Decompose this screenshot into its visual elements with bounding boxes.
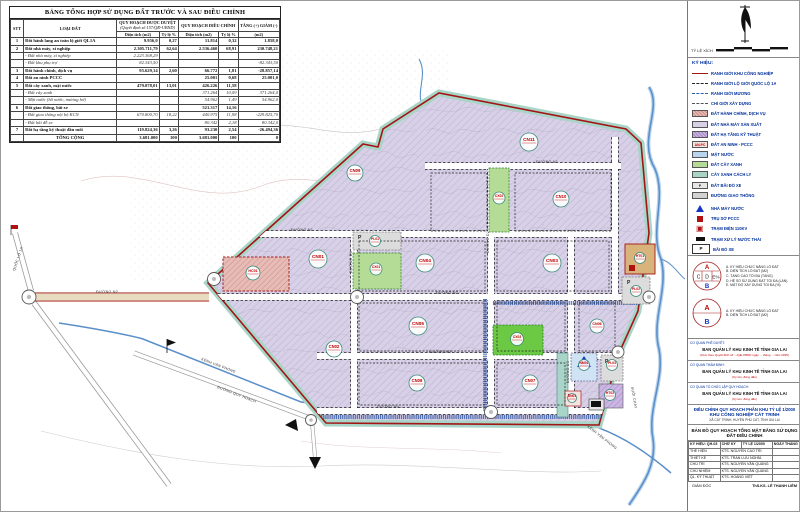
table-row: - Đất cây xanh371.26410,09371.264,0	[11, 90, 280, 97]
legend-item: TRẠM XỬ LÝ NƯỚC THẢI	[692, 234, 798, 244]
lot-circle-full-notes: A. KÝ HIỆU CHỨC NĂNG LÔ ĐẤTB. DIỆN TÍCH …	[726, 265, 798, 288]
parcel-label-cn11: CN11	[520, 133, 538, 151]
svg-text:C: C	[697, 275, 701, 281]
parcel-label-ht01: HT01	[635, 253, 646, 264]
north-arrow-icon	[725, 3, 765, 45]
legend-item: TRỤ SỞ PCCC	[692, 214, 798, 224]
svg-text:B: B	[705, 284, 710, 290]
legend-item: PBÃI ĐỖ XE	[692, 244, 798, 254]
parcel-label-cn07: CN07	[522, 375, 538, 391]
lot-circle-simple-icon: A B	[691, 297, 723, 329]
svg-text:A: A	[704, 305, 709, 312]
col-stt: STT	[11, 20, 24, 38]
legend-label: ĐẤT AN NINH - PCCC	[711, 142, 753, 147]
svg-text:B: B	[704, 319, 709, 326]
road-label: ĐƯỜNG N2	[96, 289, 118, 294]
legend-list: RANH GIỚI KHU CÔNG NGHIỆPRANH GIỚI LỘ GI…	[692, 68, 798, 200]
symbol-list: NHÀ MÁY NƯỚCTRỤ SỞ PCCCTRẠM ĐIỆN 110KVTR…	[692, 203, 798, 254]
legend-item: MẶT NƯỚC	[692, 150, 798, 160]
lot-circle-simple-notes: A. KÝ HIỆU CHỨC NĂNG LÔ ĐẤTB. DIỆN TÍCH …	[726, 309, 798, 318]
table-row: 4Đất an ninh PCCC25.0010,6825.001,0	[11, 75, 280, 82]
director-row: GIÁM ĐỐC ThS.KS. LÊ THANH LIÊM	[688, 482, 800, 490]
parcel-label-cn01: CN01	[309, 250, 327, 268]
project-title-section: ĐIỀU CHỈNH QUY HOẠCH PHÂN KHU TỶ LỆ 1/20…	[688, 405, 800, 425]
drawing-title: BẢN ĐỒ QUY HOẠCH TỔNG MẶT BẰNG SỬ DỤNG Đ…	[688, 425, 800, 441]
svg-text:CN06: CN06	[592, 322, 601, 326]
svg-text:AN01: AN01	[568, 394, 577, 398]
road-label: ĐƯỜNG D2	[485, 231, 490, 253]
staff-table: KÝ HIỆU: QH-03CHỮ KÝTỶ LỆ 1/2000NGÀY THÁ…	[688, 441, 800, 482]
svg-text:HT02: HT02	[606, 391, 614, 395]
wwtp-icon	[591, 401, 601, 407]
legend-item: TRẠM ĐIỆN 110KV	[692, 224, 798, 234]
legend-item: RANH GIỚI MƯƠNG	[692, 88, 798, 98]
legend-panel: TỶ LỆ XÍCH KÝ HIỆU: RANH GIỚI KHU CÔNG N…	[687, 1, 800, 512]
legend-item: ĐẤT HÀNH CHÍNH, DỊCH VỤ	[692, 109, 798, 119]
parcel-label-pl01: PL01	[370, 236, 381, 247]
legend-item: PĐẤT BÃI ĐỖ XE	[692, 180, 798, 190]
legend-swatch	[692, 235, 708, 243]
svg-text:NM01: NM01	[579, 361, 588, 365]
director-label: GIÁM ĐỐC	[692, 484, 711, 488]
scale-label: TỶ LỆ XÍCH	[691, 48, 713, 53]
scale-bar	[715, 46, 789, 54]
legend-item: AN-PCĐẤT AN NINH - PCCC	[692, 139, 798, 149]
legend-label: CHỈ GIỚI XÂY DỰNG	[711, 101, 751, 106]
project-line2: KHU CÔNG NGHIỆP CÁT TRINH	[690, 412, 799, 417]
svg-text:E%: E%	[712, 275, 719, 280]
legend-swatch	[692, 192, 708, 199]
svg-text:CN10: CN10	[556, 194, 567, 199]
table-row: 3Đất hành chính, dịch vụ95.629,142,6066.…	[11, 67, 280, 74]
parcel-label-ht02: HT02	[605, 390, 616, 401]
table-title: BẢNG TỔNG HỢP SỬ DỤNG ĐẤT TRƯỚC VÀ SAU Đ…	[10, 7, 280, 19]
table-row: - Đất nhà máy, xí nghiệp2.223.368,29	[11, 53, 280, 60]
table-row: TỔNG CỘNG3.681.0001003.681.0001000	[11, 134, 280, 141]
legend-item: ĐẤT NHÀ MÁY SẢN XUẤT	[692, 119, 798, 129]
parcel-label-cn10: CN10	[553, 191, 569, 207]
table-row: 7Đất hạ tầng kỹ thuật đầu mối119.824,363…	[11, 127, 280, 134]
legend-label: TRỤ SỞ PCCC	[711, 216, 740, 221]
ql1a-flag	[11, 225, 18, 229]
legend-label: NHÀ MÁY NƯỚC	[711, 206, 744, 211]
legend-swatch	[692, 121, 708, 128]
svg-text:PL03: PL03	[608, 361, 616, 365]
parcel-label-cx01: CX01	[370, 263, 382, 275]
parcel-label-cn06: CN06	[590, 319, 604, 333]
org-section: CƠ QUAN PHÊ DUYỆT:BAN QUẢN LÝ KHU KINH T…	[688, 339, 800, 361]
legend-swatch	[692, 161, 708, 168]
project-location: XÃ CÁT TRINH, HUYỆN PHÙ CÁT, TỈNH GIA LA…	[690, 418, 799, 422]
col-type: LOẠI ĐẤT	[24, 20, 117, 38]
svg-text:CX02: CX02	[495, 194, 504, 198]
legend-swatch	[692, 215, 708, 223]
staff-row: CHỦ TRÌKTS. NGUYỄN VĂN QUẢNG	[689, 462, 800, 469]
legend-swatch: AN-PC	[692, 141, 708, 148]
parcel-label-cn02: CN02	[326, 341, 342, 357]
legend-swatch	[692, 171, 708, 178]
legend-item: ĐẤT CÂY XANH	[692, 160, 798, 170]
legend-swatch: P	[692, 182, 708, 189]
staff-row: CHỦ NHIỆMKTS. NGUYỄN VĂN QUẢNG	[689, 468, 800, 475]
col-delta: TĂNG (+) GIẢM (-)	[238, 20, 280, 32]
legend-swatch	[692, 93, 708, 94]
legend-label: ĐẤT NHÀ MÁY SẢN XUẤT	[711, 122, 762, 127]
legend-label: ĐƯỜNG GIAO THÔNG	[711, 193, 755, 198]
legend-swatch	[692, 131, 708, 138]
legend-label: ĐẤT HÀNH CHÍNH, DỊCH VỤ	[711, 111, 766, 116]
legend-label: ĐẤT CÂY XANH	[711, 162, 742, 167]
legend-label: BÃI ĐỖ XE	[713, 247, 734, 252]
landuse-table: STT LOẠI ĐẤT QUY HOẠCH ĐƯỢC DUYỆT (Quyết…	[10, 19, 280, 142]
legend-swatch	[692, 151, 708, 158]
svg-text:CN02: CN02	[329, 344, 340, 349]
staff-row: THIẾT KẾKTS. TRẦN LƯU NGHĨA	[689, 455, 800, 462]
svg-text:D: D	[705, 275, 709, 281]
parcel-label-hc01: HC01	[246, 266, 260, 280]
staff-row: THỂ HIỆNKTS. NGUYỄN CAO TRÍ	[689, 448, 800, 455]
table-row: - Mặt nước (hồ nước, mương hở)54.9621,49…	[11, 97, 280, 104]
parcel-label-pl03: PL03	[607, 360, 618, 371]
table-row: - Đất giao thông nội bộ KCN670.800,7018,…	[11, 112, 280, 119]
legend-label: ĐẤT HẠ TẦNG KỸ THUẬT	[711, 132, 761, 137]
svg-text:HT01: HT01	[636, 254, 644, 258]
sub-col-ratio-2: Tỷ lệ %	[219, 31, 238, 37]
svg-text:PL02: PL02	[632, 287, 640, 291]
svg-text:CN07: CN07	[525, 378, 536, 383]
road-label: ĐƯỜNG N3	[429, 349, 451, 354]
parcel-label-cn04: CN04	[416, 254, 434, 272]
parcel-label-cn05: CN05	[409, 317, 427, 335]
road-label: ĐƯỜNG D3	[565, 361, 570, 383]
road-label: ĐƯỜNG N1	[536, 159, 558, 164]
scale-bar-row: TỶ LỆ XÍCH	[688, 45, 800, 58]
substation-icon	[629, 265, 635, 271]
road-label: ĐƯỜNG D1	[348, 251, 353, 273]
legend-swatch	[692, 205, 708, 213]
svg-text:CN01: CN01	[312, 254, 324, 259]
legend-label: MẶT NƯỚC	[711, 152, 734, 157]
legend-swatch	[692, 225, 708, 233]
legend-swatch: P	[692, 244, 710, 254]
legend-item: CHỈ GIỚI XÂY DỰNG	[692, 99, 798, 109]
legend-item: RANH GIỚI LỘ GIỚI QUỐC LỘ 1A	[692, 78, 798, 88]
col-adjusted: QUY HOẠCH ĐIỀU CHỈNH	[178, 20, 238, 32]
plan-sheet: P P P	[0, 0, 800, 512]
table-row: - Đất bãi đỗ xe80.3422,1880.342,0	[11, 119, 280, 126]
svg-text:HC01: HC01	[248, 269, 257, 273]
parcel-label-cn08: CN08	[409, 375, 425, 391]
title-block: CƠ QUAN PHÊ DUYỆT:BAN QUẢN LÝ KHU KINH T…	[688, 339, 800, 490]
parcel-label-cn03: CN03	[543, 254, 561, 272]
director-name: ThS.KS. LÊ THANH LIÊM	[752, 484, 797, 488]
legend-section: KÝ HIỆU: RANH GIỚI KHU CÔNG NGHIỆPRANH G…	[688, 58, 800, 256]
legend-label: ĐẤT BÃI ĐỖ XE	[711, 183, 741, 188]
table-row: 5Đất cây xanh, mặt nước479.078,0113,0142…	[11, 82, 280, 89]
legend-label: TRẠM XỬ LÝ NƯỚC THẢI	[711, 237, 761, 242]
legend-swatch	[692, 110, 708, 117]
road-label: ĐƯỜNG N4	[377, 404, 399, 409]
parcel-label-cx03: CX03	[511, 333, 524, 346]
legend-title: KÝ HIỆU:	[692, 61, 798, 66]
svg-text:CN03: CN03	[546, 258, 558, 263]
legend-swatch	[692, 103, 708, 104]
lot-symbol-key: A C D E% B A. KÝ HIỆU CHỨC NĂNG LÔ ĐẤTB.…	[688, 256, 800, 339]
legend-label: TRẠM ĐIỆN 110KV	[711, 226, 747, 231]
svg-text:CN04: CN04	[419, 258, 431, 263]
svg-text:PL01: PL01	[371, 237, 379, 241]
landuse-summary-table: BẢNG TỔNG HỢP SỬ DỤNG ĐẤT TRƯỚC VÀ SAU Đ…	[9, 6, 281, 143]
legend-label: CÂY XANH CÁCH LY	[711, 172, 751, 177]
org-section: CƠ QUAN TỔ CHỨC LẬP QUY HOẠCH:BAN QUẢN L…	[688, 383, 800, 405]
legend-label: RANH GIỚI LỘ GIỚI QUỐC LỘ 1A	[711, 81, 776, 86]
parcel-label-cx02: CX02	[493, 192, 505, 204]
road-label: ĐƯỜNG N2	[436, 290, 458, 295]
svg-text:CX01: CX01	[372, 265, 381, 269]
svg-text:CN11: CN11	[523, 137, 535, 142]
legend-swatch	[692, 83, 708, 84]
svg-text:CX03: CX03	[513, 335, 522, 339]
parcel-label-pl02: PL02	[631, 286, 642, 297]
legend-item: NHÀ MÁY NƯỚC	[692, 203, 798, 213]
org-section: CƠ QUAN THẨM ĐỊNH:BAN QUẢN LÝ KHU KINH T…	[688, 361, 800, 383]
legend-label: RANH GIỚI KHU CÔNG NGHIỆP	[711, 71, 773, 76]
legend-label: RANH GIỚI MƯƠNG	[711, 91, 751, 96]
col-approved: QUY HOẠCH ĐƯỢC DUYỆT (Quyết định số 157/…	[117, 20, 179, 32]
table-row: 1Đất hành lang an toàn lộ giới QL1A9.956…	[11, 38, 280, 45]
sub-col-ratio-1: Tỷ lệ %	[159, 31, 178, 37]
lot-circle-full-icon: A C D E% B	[691, 260, 723, 292]
parcel-label-an01: AN01	[568, 394, 577, 403]
staff-row: QL. KỸ THUẬTKTS. HOÀNG VIỆT	[689, 475, 800, 482]
legend-item: ĐƯỜNG GIAO THÔNG	[692, 190, 798, 200]
svg-text:A: A	[705, 265, 710, 271]
svg-text:CN05: CN05	[412, 321, 424, 326]
table-row: 2Đất nhà máy, xí nghiệp2.305.711,7962,64…	[11, 45, 280, 52]
svg-text:CN08: CN08	[412, 378, 423, 383]
legend-item: CÂY XANH CÁCH LY	[692, 170, 798, 180]
legend-item: ĐẤT HẠ TẦNG KỸ THUẬT	[692, 129, 798, 139]
table-row: - Đất khu phụ trợ82.343,50-82.343,50	[11, 60, 280, 67]
parcel-label-nm01: NM01	[579, 360, 590, 371]
legend-swatch	[692, 73, 708, 74]
svg-text:CN09: CN09	[350, 168, 361, 173]
lot-circle-simple: A B A. KÝ HIỆU CHỨC NĂNG LÔ ĐẤTB. DIỆN T…	[691, 297, 798, 329]
parcel-label-cn09: CN09	[347, 165, 363, 181]
road-label: ĐƯỜNG N1	[291, 227, 313, 232]
legend-item: RANH GIỚI KHU CÔNG NGHIỆP	[692, 68, 798, 78]
table-row: 6Đất giao thông, bãi xe521.31714,16	[11, 104, 280, 111]
lot-circle-full: A C D E% B A. KÝ HIỆU CHỨC NĂNG LÔ ĐẤTB.…	[691, 260, 798, 292]
